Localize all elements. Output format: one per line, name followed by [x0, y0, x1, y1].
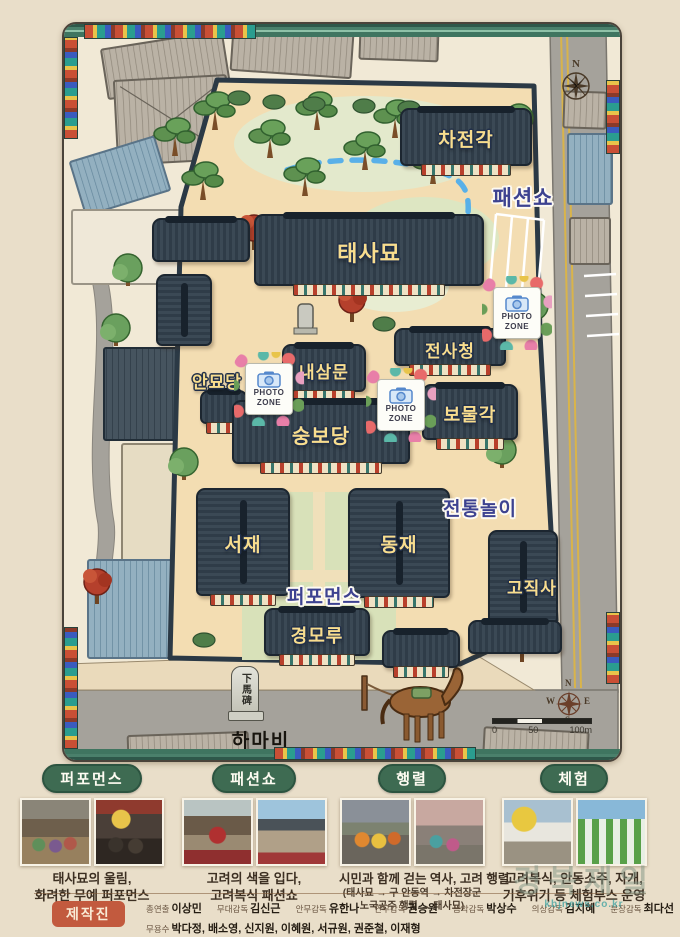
compass-w-label: W [546, 696, 555, 706]
stone-inscription: 下馬碑 [238, 673, 253, 706]
scale-bar-rule [492, 718, 592, 724]
building-gyeongmoru: 경모루 [264, 608, 370, 656]
building-seojae: 서재 [196, 488, 290, 596]
building-base [393, 666, 449, 678]
event-badge: 체험 [540, 764, 608, 793]
building-taesamyo: 태사묘 [254, 214, 484, 286]
event-photo [182, 798, 253, 866]
compass-n-label: N [558, 58, 594, 70]
dancheong-right-bottom [606, 612, 620, 684]
event-badge: 행렬 [378, 764, 446, 793]
building-label: 태사묘 [234, 236, 504, 268]
compass-north: N [558, 58, 594, 107]
dancheong-left-bottom [64, 627, 78, 749]
event-photo [414, 798, 485, 866]
roof [152, 218, 250, 262]
building-label: 동재 [328, 530, 470, 557]
event-caption: 태사묘의 울림,화려한 무예 퍼포먼스 [20, 871, 164, 905]
compass-n-label: N [565, 678, 572, 688]
building-base [421, 164, 511, 176]
credits-badge: 제작진 [52, 901, 125, 927]
roof [156, 274, 212, 346]
event-photo [94, 798, 165, 866]
illustrated-map: 차전각 태사묘 전사청 내삼문 안묘당 보물각 숭보당 서재 동재 고직사 경모… [62, 22, 622, 762]
building-gojiksa [468, 620, 562, 654]
building-label: 경모루 [244, 622, 390, 648]
photo-zone-marker-3: PHOTO ZONE [372, 374, 430, 436]
photo-zone-text: PHOTO [502, 313, 533, 322]
scale-hundred: 100m [569, 725, 592, 735]
photo-zone-text: ZONE [389, 415, 413, 424]
stone-pedestal [228, 711, 264, 721]
credits: 총연출이상민 무대감독김신근 안무감독유한나 안무감독권승원 음악감독박상수 의… [146, 899, 674, 937]
photo-zone-card: PHOTO ZONE [493, 287, 541, 339]
credit-item: 안무감독권승원 [374, 899, 438, 917]
roof [468, 620, 562, 654]
dancheong-bottom [274, 747, 476, 760]
photo-zone-text: ZONE [257, 399, 281, 408]
photo-zone-text: PHOTO [386, 405, 417, 414]
scale-fifty: 50 [528, 725, 538, 735]
event-experience: 체험 고려복식, 안동소주, 자개,기후위기 등 체험부스 운영 [499, 764, 649, 905]
credit-item: 총연출이상민 [146, 899, 202, 917]
credit-item: 무대감독김신근 [217, 899, 281, 917]
photo-zone-text: PHOTO [254, 389, 285, 398]
event-photos [339, 798, 485, 866]
photo-zone-card: PHOTO ZONE [245, 363, 293, 415]
building-west-wing [156, 274, 212, 346]
dancheong-left-top [64, 37, 78, 139]
event-photo [576, 798, 647, 866]
event-photo [20, 798, 91, 866]
camera-icon [389, 387, 413, 404]
building-label: 차전각 [380, 125, 552, 152]
camera-icon [257, 371, 281, 388]
building-label-gojiksa: 고직사 [484, 574, 580, 599]
event-photos [20, 798, 164, 866]
credit-item: 의상감독김지혜 [532, 899, 596, 917]
dancheong-right-top [606, 80, 620, 154]
event-photos [181, 798, 327, 866]
credits-row-1: 총연출이상민 무대감독김신근 안무감독유한나 안무감독권승원 음악감독박상수 의… [146, 899, 674, 917]
event-photo [502, 798, 573, 866]
scale-zero: 0 [492, 725, 497, 735]
building-base [436, 438, 504, 450]
building-label: 서재 [176, 530, 310, 557]
event-photo [340, 798, 411, 866]
credit-item: 안무감독유한나 [296, 899, 360, 917]
event-fashion-show: 패션쇼 고려의 색을 입다,고려복식 패션쇼 [181, 764, 327, 905]
map-label-performance: 퍼포먼스 [264, 582, 384, 609]
event-caption: 시민과 함께 걷는 역사, 고려 행렬 [339, 871, 485, 887]
event-photo [256, 798, 327, 866]
stone-slab: 下馬碑 [231, 666, 259, 712]
photo-zone-text: ZONE [505, 323, 529, 332]
photo-zone-marker-1: PHOTO ZONE [488, 282, 546, 344]
dancheong-top [84, 24, 256, 39]
building-west-hall [152, 218, 250, 262]
event-badge: 패션쇼 [212, 764, 295, 793]
building-chajeongak: 차전각 [400, 108, 532, 166]
credits-row-2: 무용수박다정, 배소영, 신지원, 이혜원, 서규원, 권준철, 이재형 [146, 919, 674, 937]
photo-zone-card: PHOTO ZONE [377, 379, 425, 431]
credit-item: 음악감독박상수 [453, 899, 517, 917]
building-bomulgak: 보물각 [422, 384, 518, 440]
compass-rose-icon [560, 70, 592, 102]
roof [382, 630, 460, 668]
building-base [293, 284, 445, 296]
event-performance: 퍼포먼스 태사묘의 울림,화려한 무예 퍼포먼스 [20, 764, 164, 905]
event-badge: 퍼포먼스 [42, 764, 141, 793]
building-annex [382, 630, 460, 668]
map-label-traditional-games: 전통놀이 [420, 494, 540, 521]
compass-rose-icon [555, 690, 583, 718]
event-procession: 행렬 시민과 함께 걷는 역사, 고려 행렬 (태사묘 → 구 안동역 → 차전… [339, 764, 485, 913]
compass-e-label: E [584, 696, 590, 706]
hamabi-stone: 下馬碑 [228, 666, 262, 721]
building-base [279, 654, 355, 666]
scale-bar: 0 50 100m [492, 718, 592, 735]
building-base [260, 462, 382, 474]
camera-icon [505, 295, 529, 312]
map-label-fashion-show: 패션쇼 [468, 182, 578, 212]
credits-divider [34, 893, 646, 894]
event-photos [499, 798, 649, 866]
credit-item: 분장감독최다선 [610, 899, 674, 917]
photo-zone-marker-2: PHOTO ZONE [240, 358, 298, 420]
